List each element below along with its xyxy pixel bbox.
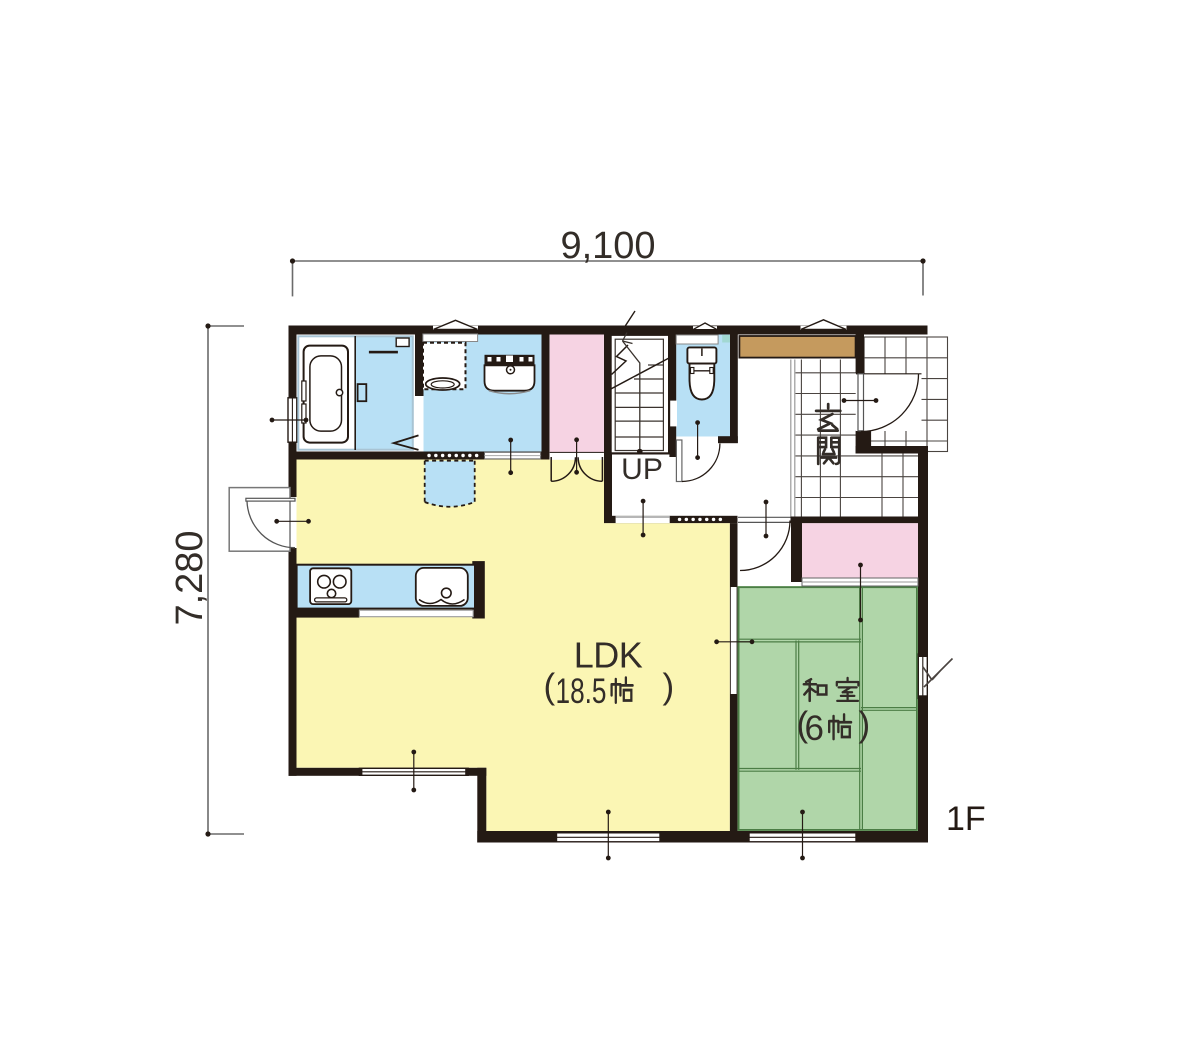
svg-text:7,280: 7,280 — [169, 530, 211, 625]
svg-text:9,100: 9,100 — [560, 225, 655, 267]
svg-text:6: 6 — [805, 709, 824, 748]
svg-text:(: ( — [544, 667, 556, 706]
svg-text:): ) — [859, 705, 871, 744]
svg-text:UP: UP — [621, 453, 663, 486]
svg-text:): ) — [663, 667, 675, 706]
svg-text:LDK: LDK — [574, 635, 643, 676]
svg-text:1F: 1F — [946, 800, 986, 838]
svg-text:18.5: 18.5 — [556, 672, 607, 711]
